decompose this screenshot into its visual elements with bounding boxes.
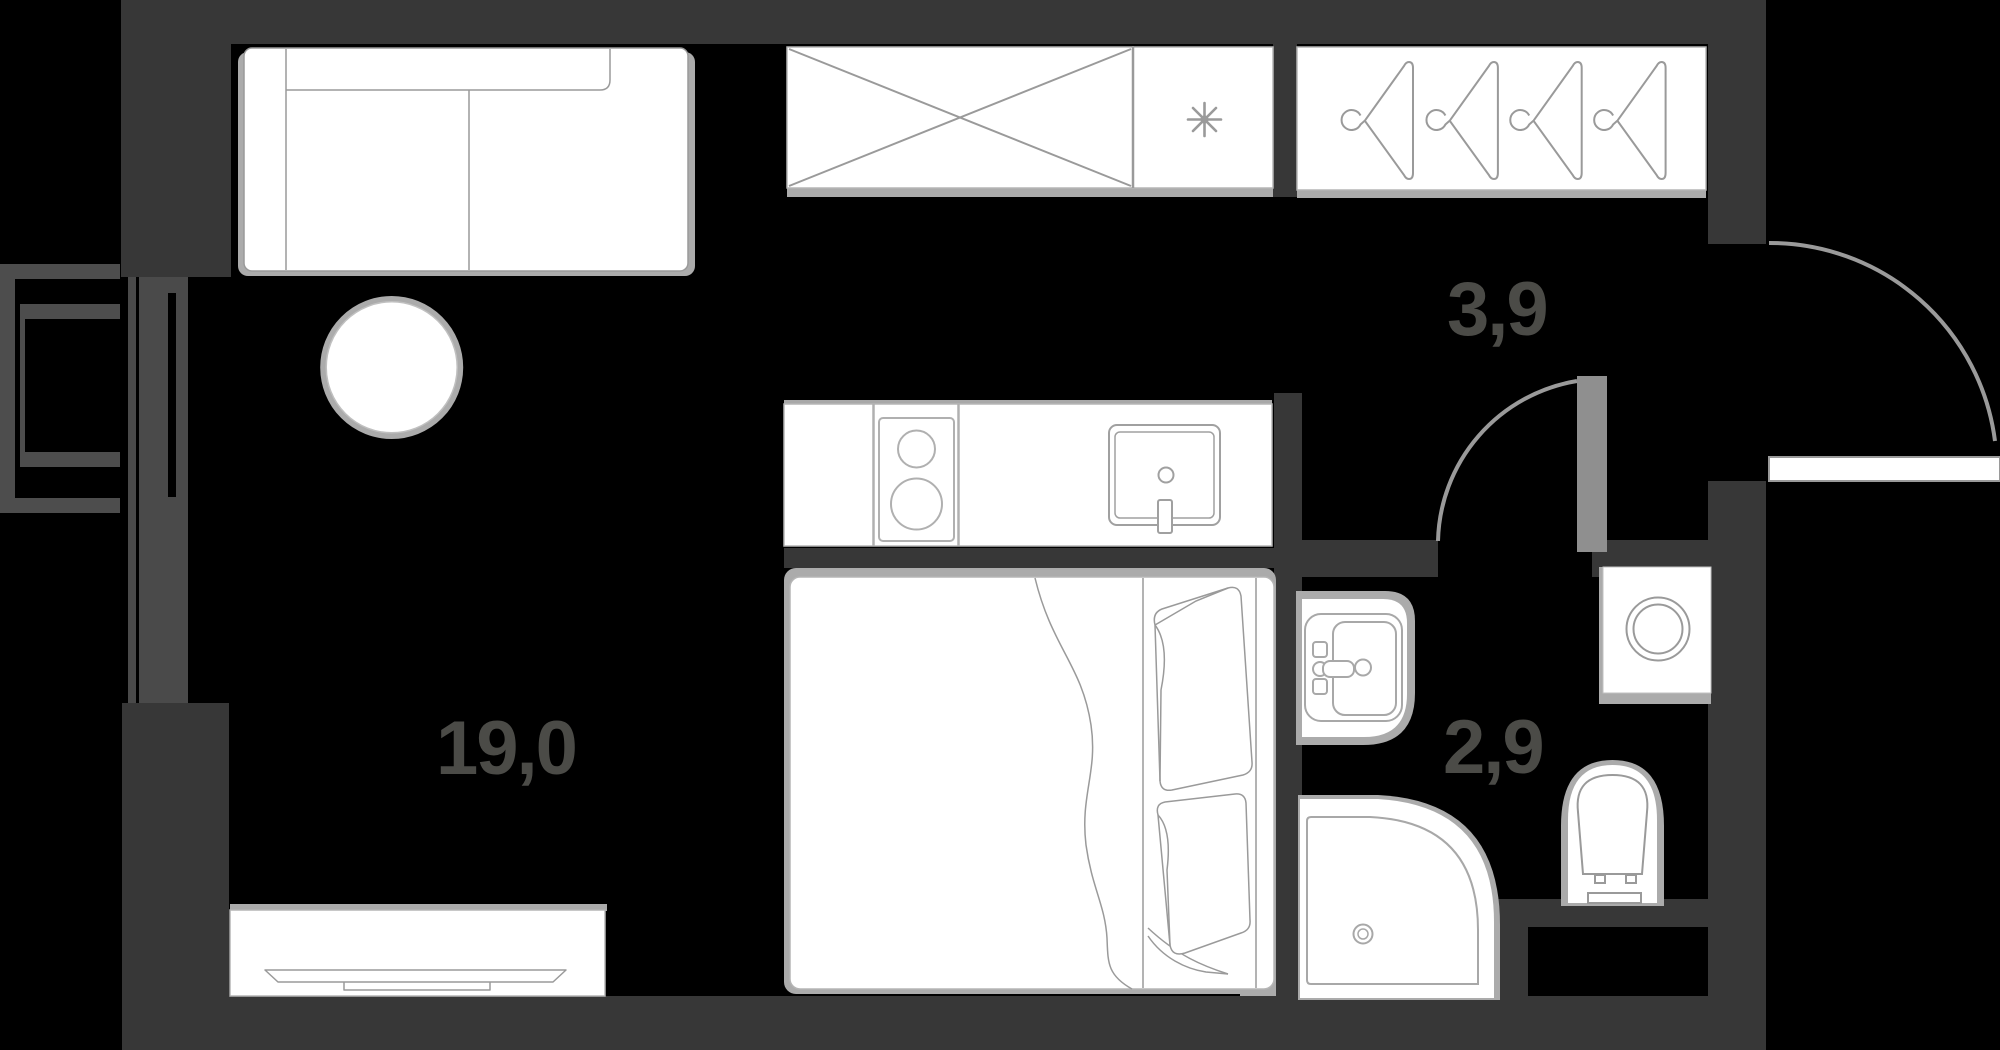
svg-text:19,0: 19,0 <box>436 706 576 791</box>
svg-text:2,9: 2,9 <box>1443 705 1543 790</box>
svg-text:3,9: 3,9 <box>1447 267 1547 352</box>
